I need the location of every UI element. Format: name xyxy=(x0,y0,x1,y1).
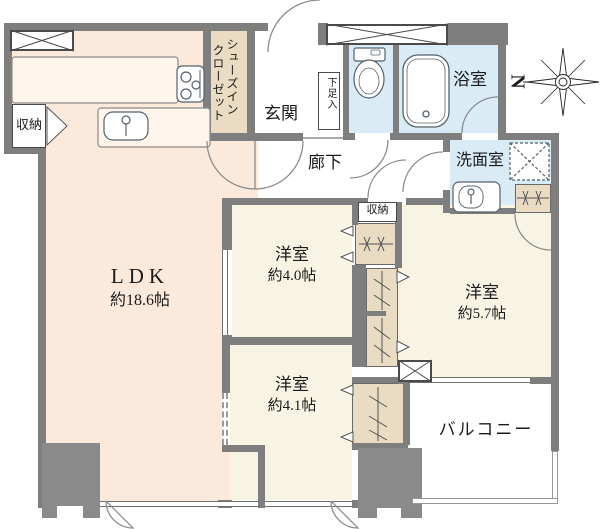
storage-folding-door xyxy=(47,107,67,145)
bedroom-5-7-door-arc xyxy=(515,214,551,250)
bedroom-4-0-door-arc xyxy=(368,160,406,198)
vanity-sink-icon xyxy=(453,182,500,212)
washroom-label: 洗面室 xyxy=(448,151,512,171)
compass-north-label: N xyxy=(505,70,530,94)
toilet-door-arc xyxy=(350,140,388,178)
ldk-label: LDK xyxy=(95,263,185,289)
bedroom-4-1-balcony-door-arc xyxy=(331,501,358,528)
bedroom-4-1-label: 洋室 xyxy=(257,374,327,395)
entrance-label: 玄関 xyxy=(259,103,303,124)
hallway-label: 廊下 xyxy=(301,152,349,173)
front-door-arc xyxy=(268,0,320,52)
compass-icon xyxy=(523,48,599,116)
bedroom-5-7-label: 洋室 xyxy=(447,282,517,303)
toilet-icon xyxy=(354,48,385,98)
bath-door-arc xyxy=(462,97,498,133)
bedroom-4-0-label: 洋室 xyxy=(257,244,327,265)
bedroom-4-0-size-label: 約4.0帖 xyxy=(252,267,332,286)
storage-hall-label: 収納 xyxy=(358,204,397,218)
shoe-cabinet-label: 下足入 xyxy=(323,77,338,127)
floor-plan: LDK 約18.6帖 シューズイン クローゼット 玄関 下足入 廊下 浴室 洗面… xyxy=(0,0,600,529)
washing-machine-space xyxy=(510,143,549,180)
ldk-double-door-arc xyxy=(207,141,303,189)
bedroom-5-7-size-label: 約5.7帖 xyxy=(442,305,522,324)
bathtub-icon xyxy=(403,55,449,127)
sink-icon xyxy=(104,112,148,140)
stove-icon xyxy=(177,66,204,102)
shoes-in-closet-label-line2: クローゼット xyxy=(210,44,227,140)
ldk-size-label: 約18.6帖 xyxy=(90,291,190,311)
bathroom-label: 浴室 xyxy=(444,69,496,90)
ldk-balcony-door-arc xyxy=(106,501,133,528)
washroom-door-arc xyxy=(403,152,443,192)
bedroom-4-1-size-label: 約4.1帖 xyxy=(252,397,332,416)
storage-ldk-label: 収納 xyxy=(12,117,46,133)
balcony-label: バルコニー xyxy=(432,419,540,440)
